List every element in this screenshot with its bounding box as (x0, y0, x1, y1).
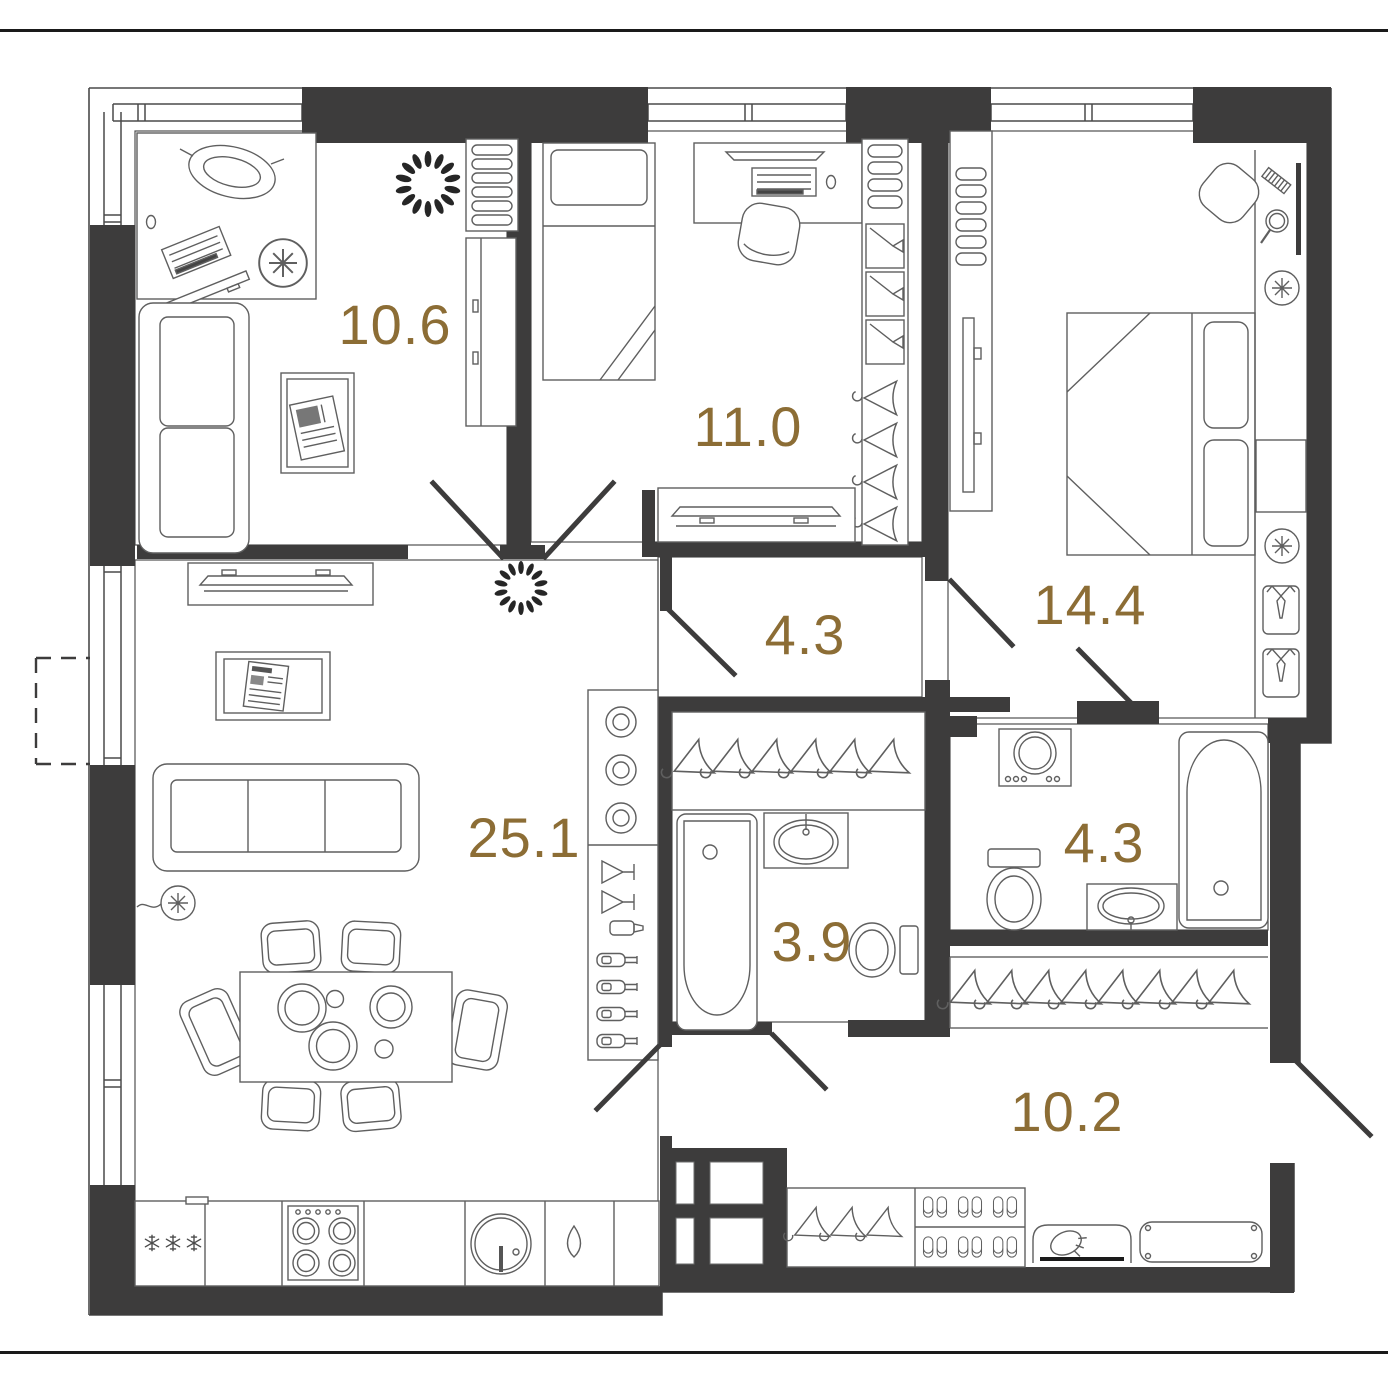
bathtub-icon (1179, 732, 1268, 928)
bar-shelf-icon (588, 690, 658, 1060)
shelf-icon (466, 139, 518, 231)
bench-icon (1140, 1222, 1262, 1262)
entrance-door-icon (1298, 1063, 1370, 1135)
tv-console-icon (188, 563, 373, 605)
door-leaf-icon (951, 581, 1012, 645)
keyboard-icon (752, 168, 816, 196)
cabinet-icon (466, 238, 516, 426)
door-leaf-icon (670, 611, 734, 674)
toilet-icon (987, 849, 1041, 930)
sofa-icon (153, 764, 419, 871)
hand-mirror-icon (1261, 210, 1288, 243)
floor-lamp-icon (137, 886, 195, 920)
office-chair-icon (735, 200, 802, 267)
sink-icon (764, 813, 848, 868)
room-area-label-bath-4-3: 4.3 (1064, 815, 1145, 871)
comb-icon (1262, 168, 1291, 194)
wall-lamp-icon (1265, 529, 1299, 563)
toilet-icon (849, 923, 918, 977)
balcony-dashed-icon (36, 658, 90, 764)
coffee-table-icon (281, 373, 354, 473)
hanger-rail-icon (931, 957, 1268, 1028)
dresser-icon (658, 488, 855, 542)
floor-plan-drawing (0, 0, 1388, 1388)
desk-icon (137, 133, 316, 318)
room-area-label-3-9: 3.9 (772, 914, 853, 970)
room-area-label-10-6: 10.6 (339, 297, 452, 353)
plate-icon (370, 986, 412, 1028)
bathtub-icon (677, 814, 757, 1030)
shoe-brush-icon (1033, 1224, 1131, 1266)
stove-icon (288, 1206, 358, 1280)
nightstand-icon (1256, 440, 1306, 512)
door-leaf-icon (773, 1035, 825, 1088)
sofa-icon (139, 303, 249, 553)
plant-icon (395, 151, 461, 217)
room-area-label-11-0: 11.0 (694, 399, 803, 455)
dining-table-icon (240, 972, 452, 1082)
bed-icon (1067, 313, 1255, 555)
room-area-label-hall-4-3: 4.3 (765, 607, 846, 663)
door-leaf-icon (545, 483, 613, 557)
closet-icon (778, 1188, 1025, 1267)
washing-machine-icon (999, 729, 1071, 786)
floor-plan-page: 10.6 11.0 14.4 4.3 25.1 3.9 4.3 10.2 (0, 0, 1388, 1388)
sink-icon (1087, 884, 1177, 930)
kitchen-counter-icon (135, 1197, 659, 1286)
room-area-label-25-1: 25.1 (468, 810, 581, 866)
picture-frame-icon (216, 652, 330, 720)
wall-lamp-icon (1265, 271, 1299, 305)
mirror-icon (1296, 163, 1301, 255)
shirt-box-icon (1263, 586, 1299, 634)
door-leaf-icon (433, 483, 502, 557)
hanger-rail-icon (655, 712, 925, 810)
bed-icon (543, 143, 655, 380)
plant-icon (494, 561, 548, 615)
tv-unit-icon (950, 131, 992, 511)
room-area-label-14-4: 14.4 (1034, 577, 1147, 633)
room-area-label-10-2: 10.2 (1011, 1084, 1124, 1140)
shirt-box-icon (1263, 649, 1299, 697)
